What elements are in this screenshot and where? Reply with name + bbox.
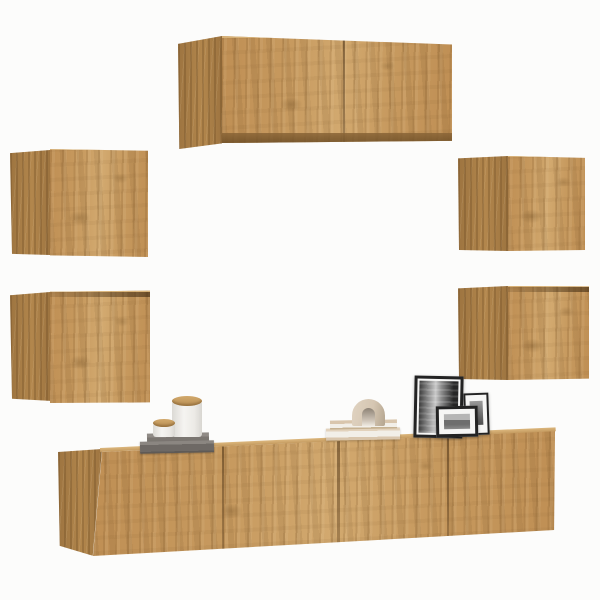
gray-book-bottom: [140, 440, 214, 454]
photo-landscape-bw: [444, 414, 470, 429]
wall-cabinet-right-lower: [508, 285, 589, 380]
wall-cabinet-top-side-panel: [178, 36, 222, 149]
candle-small-lid: [153, 419, 175, 427]
wall-cabinet-top: [222, 36, 452, 143]
product-photo: [0, 0, 600, 600]
cabinet-bottom-shadow-edge: [222, 133, 452, 143]
arch-ornament-opening: [362, 408, 375, 426]
wall-cabinet-left-lower-side-panel: [10, 292, 50, 402]
wall-cabinet-left-lower: [50, 290, 150, 403]
cabinet-top-edge-shadow: [508, 287, 589, 292]
candle-large-lid: [172, 396, 202, 406]
photo-frame-front: [436, 406, 479, 438]
wall-cabinet-left-upper: [50, 148, 148, 257]
cabinet-top-edge-highlight: [222, 36, 452, 38]
cabinet-top-edge-shadow: [50, 292, 150, 297]
wall-cabinet-right-lower-side-panel: [458, 286, 508, 380]
candle-large-body: [172, 401, 202, 437]
arch-ornament: [352, 399, 385, 426]
cabinet-top-edge-highlight: [508, 155, 585, 157]
cabinet-door-seam: [343, 36, 345, 143]
tv-stand-unit-gap: [337, 431, 340, 556]
tv-stand-door-seam: [447, 431, 449, 556]
wall-cabinet-right-upper: [508, 155, 585, 251]
wall-cabinet-right-upper-side-panel: [458, 156, 508, 251]
wall-cabinet-left-upper-side-panel: [10, 150, 50, 256]
tv-stand-door-seam: [222, 431, 224, 556]
cabinet-top-edge-highlight: [50, 148, 148, 150]
